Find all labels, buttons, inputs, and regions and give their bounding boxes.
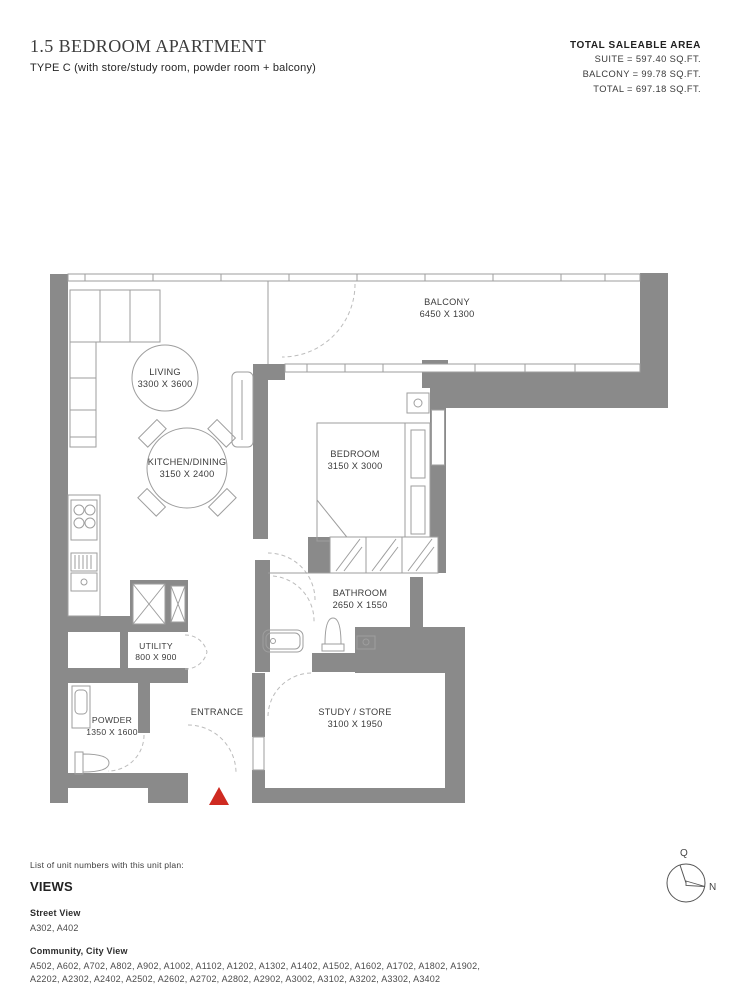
sofa [70, 290, 160, 447]
page-title: 1.5 BEDROOM APARTMENT [30, 36, 266, 57]
total-area: TOTAL = 697.18 SQ.FT. [570, 82, 701, 96]
page-subtitle: TYPE C (with store/study room, powder ro… [30, 62, 316, 74]
room-dims-living: 3300 X 3600 [138, 379, 193, 389]
plan-windows [68, 274, 640, 770]
community-city-view-label: Community, City View [30, 946, 128, 956]
study-door-arc [268, 673, 312, 716]
powder-vanity [72, 686, 90, 728]
compass-qibla-label: Q [680, 848, 688, 859]
room-label-living: LIVING [149, 367, 181, 377]
room-label-balcony: BALCONY [424, 297, 470, 307]
floor-plan: LIVING 3300 X 3600 KITCHEN/DINING 3150 X… [45, 260, 675, 810]
compass-north-label: N [709, 882, 716, 893]
entrance-marker-triangle [209, 787, 229, 805]
room-dims-bathroom: 2650 X 1550 [333, 600, 388, 610]
community-city-view-units: A502, A602, A702, A802, A902, A1002, A11… [30, 960, 482, 985]
room-label-bedroom: BEDROOM [330, 449, 379, 459]
kitchen-sink [71, 573, 97, 591]
room-label-study: STUDY / STORE [318, 707, 391, 717]
compass-qibla-needle [680, 865, 686, 883]
balcony-area: BALCONY = 99.78 SQ.FT. [570, 67, 701, 81]
room-label-bathroom: BATHROOM [333, 588, 387, 598]
total-saleable-area-block: TOTAL SALEABLE AREA SUITE = 597.40 SQ.FT… [570, 40, 701, 96]
living-label-circle [132, 345, 198, 411]
room-label-powder: POWDER [92, 715, 132, 725]
room-label-utility: UTILITY [139, 641, 173, 651]
suite-area: SUITE = 597.40 SQ.FT. [570, 52, 701, 66]
utility-door-arc-2 [185, 652, 207, 669]
utility-door-arc-1 [185, 635, 207, 652]
compass: Q N [660, 843, 722, 913]
room-dims-study: 3100 X 1950 [328, 719, 383, 729]
room-dims-bedroom: 3150 X 3000 [328, 461, 383, 471]
service-shafts [133, 584, 185, 624]
toilet-bathroom [322, 618, 344, 651]
room-dims-balcony: 6450 X 1300 [420, 309, 475, 319]
unit-list-intro: List of unit numbers with this unit plan… [30, 860, 184, 870]
entrance-door-arc [188, 725, 236, 773]
views-heading: VIEWS [30, 879, 73, 894]
room-label-kitchen: KITCHEN/DINING [148, 457, 227, 467]
powder-door-arc [108, 735, 144, 771]
balcony-door-arc [282, 284, 355, 357]
compass-north-needle [686, 881, 705, 887]
toilet-powder [75, 752, 109, 774]
street-view-units: A302, A402 [30, 922, 79, 935]
area-heading: TOTAL SALEABLE AREA [570, 40, 701, 51]
bathroom-door-arc [273, 576, 314, 622]
room-dims-utility: 800 X 900 [135, 652, 176, 662]
kitchen-counter [68, 495, 100, 616]
bedside-table [407, 393, 429, 413]
wardrobe [330, 537, 438, 573]
room-dims-kitchen: 3150 X 2400 [160, 469, 215, 479]
street-view-label: Street View [30, 908, 81, 918]
bedroom-window [432, 410, 445, 465]
room-dims-powder: 1350 X 1600 [86, 727, 138, 737]
brochure-page: 1.5 BEDROOM APARTMENT TYPE C (with store… [0, 0, 731, 1000]
study-door-leaf [253, 737, 264, 770]
dining-table [138, 420, 236, 517]
room-label-entrance: ENTRANCE [191, 707, 244, 717]
